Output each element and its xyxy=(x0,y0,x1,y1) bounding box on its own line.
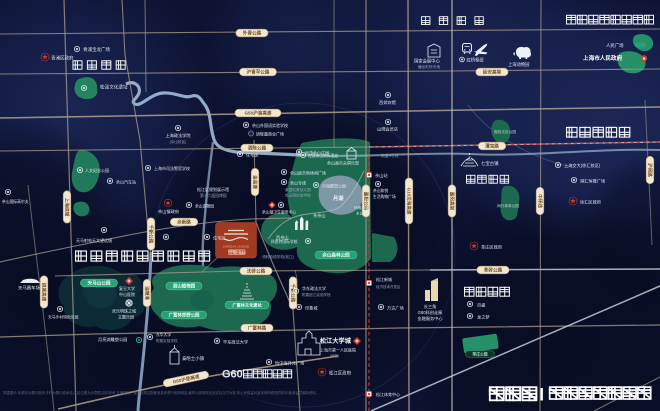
svg-text:上海市人民政府: 上海市人民政府 xyxy=(583,54,623,62)
svg-text:金昌塘: 金昌塘 xyxy=(251,174,258,189)
svg-text:经济技术开发区: 经济技术开发区 xyxy=(376,284,401,289)
svg-text:徐汇区政府: 徐汇区政府 xyxy=(580,199,601,206)
svg-text:CHATEAU LEGEND: CHATEAU LEGEND xyxy=(223,245,249,249)
svg-text:G50沪渝高速: G50沪渝高速 xyxy=(244,110,271,117)
svg-text:上海动物园: 上海动物园 xyxy=(508,61,529,68)
svg-text:虹桥枢纽: 虹桥枢纽 xyxy=(467,57,485,64)
svg-text:旭辉墨商业广场: 旭辉墨商业广场 xyxy=(256,131,284,137)
svg-text:松江体育中心: 松江体育中心 xyxy=(376,391,400,397)
svg-text:(佘山校区): (佘山校区) xyxy=(170,139,187,144)
svg-text:上海交大(徐汇校区): 上海交大(徐汇校区) xyxy=(564,162,601,169)
svg-text:上海政法学院: 上海政法学院 xyxy=(165,132,191,139)
svg-text:包玉刚实验学校: 包玉刚实验学校 xyxy=(285,193,311,198)
svg-text:领科双语学校(松江): 领科双语学校(松江) xyxy=(262,254,294,259)
svg-text:上海市第一人民医院: 上海市第一人民医院 xyxy=(320,347,356,353)
svg-text:千新公路: 千新公路 xyxy=(147,225,154,244)
svg-text:水公园: 水公园 xyxy=(356,211,367,216)
svg-text:科思特国际学校: 科思特国际学校 xyxy=(271,239,298,244)
svg-text:绕城高速: 绕城高速 xyxy=(40,283,47,302)
svg-text:生活购物广场: 生活购物广场 xyxy=(373,194,396,199)
svg-text:佘新路: 佘新路 xyxy=(176,219,191,226)
svg-text:佘山国际高尔夫: 佘山国际高尔夫 xyxy=(2,199,29,204)
svg-text:佘山专线: 佘山专线 xyxy=(290,180,306,186)
svg-text:蟠龙虹桥天地: 蟠龙虹桥天地 xyxy=(418,64,440,69)
svg-text:中环线: 中环线 xyxy=(536,194,543,208)
svg-text:万达广场: 万达广场 xyxy=(387,305,404,312)
svg-text:天马赛车场: 天马赛车场 xyxy=(18,285,41,292)
svg-text:长三角: 长三角 xyxy=(424,303,437,310)
svg-text:山姆会员店: 山姆会员店 xyxy=(377,126,398,133)
svg-text:天马射电天文望远镜: 天马射电天文望远镜 xyxy=(76,237,112,243)
svg-text:印象城: 印象城 xyxy=(305,305,318,312)
svg-text:人民广场: 人民广场 xyxy=(606,42,624,49)
svg-text:第十六届园博园: 第十六届园博园 xyxy=(200,193,227,198)
svg-text:佘山高尔夫俱乐部: 佘山高尔夫俱乐部 xyxy=(327,160,359,166)
svg-text:泗陈公路: 泗陈公路 xyxy=(248,145,267,152)
svg-text:住宅区: 住宅区 xyxy=(213,235,226,241)
svg-text:世茂佘山庄园: 世茂佘山庄园 xyxy=(305,150,329,156)
svg-text:月亮湖雕塑公园: 月亮湖雕塑公园 xyxy=(98,336,127,343)
svg-text:上海绕城: 上海绕城 xyxy=(63,198,70,217)
svg-text:松泽文化遗址: 松泽文化遗址 xyxy=(100,84,128,91)
svg-text:G60科创走廊: G60科创走廊 xyxy=(418,309,443,316)
svg-text:佘山外国语实验学校: 佘山外国语实验学校 xyxy=(252,122,288,128)
svg-text:莱茵虹景幼儿园: 莱茵虹景幼儿园 xyxy=(285,187,311,192)
svg-text:佘山游憩园: 佘山游憩园 xyxy=(195,204,214,209)
svg-text:松江大学城: 松江大学城 xyxy=(320,337,352,345)
svg-text:松江区规划展示馆: 松江区规划展示馆 xyxy=(197,186,229,192)
svg-text:泰晤士小镇: 泰晤士小镇 xyxy=(182,355,205,362)
svg-text:东佘山: 东佘山 xyxy=(313,212,326,219)
svg-text:G15沈海高速: G15沈海高速 xyxy=(405,187,412,214)
svg-text:华东政法大学: 华东政法大学 xyxy=(302,285,326,291)
svg-text:沪青平公路: 沪青平公路 xyxy=(247,69,270,76)
svg-text:怡中海开元广场: 怡中海开元广场 xyxy=(275,360,304,367)
svg-text:月湖: 月湖 xyxy=(332,194,343,202)
svg-text:闵行体育公园: 闵行体育公园 xyxy=(497,203,519,208)
svg-text:辰山植物园: 辰山植物园 xyxy=(173,283,196,290)
svg-text:嘉闵高架: 嘉闵高架 xyxy=(448,191,455,211)
svg-text:郑重提示:本资料为要约邀请,不作为要约或承诺,本区位图为示意: 郑重提示:本资料为要约邀请,不作为要约或承诺,本区位图为示意图,仅供参考,交通规… xyxy=(3,390,319,395)
svg-text:佘山和悦: 佘山和悦 xyxy=(373,188,388,193)
svg-text:广富林文化遗址: 广富林文化遗址 xyxy=(232,302,262,309)
svg-text:佘山汽车站: 佘山汽车站 xyxy=(116,179,136,185)
svg-text:复旦大学: 复旦大学 xyxy=(119,285,135,291)
svg-text:欢乐明珠之城: 欢乐明珠之城 xyxy=(112,308,136,314)
svg-text:沈砖公路: 沈砖公路 xyxy=(247,268,266,275)
svg-text:月湖雕塑公园: 月湖雕塑公园 xyxy=(322,183,346,189)
svg-text:上海市司法警官学校: 上海市司法警官学校 xyxy=(154,165,190,171)
svg-text:附属松江实验学校: 附属松江实验学校 xyxy=(302,292,331,297)
svg-text:金融服务中心: 金融服务中心 xyxy=(417,315,443,322)
svg-text:莘庄区政府: 莘庄区政府 xyxy=(481,244,502,251)
svg-text:佘山站: 佘山站 xyxy=(375,172,388,179)
svg-text:天马山公园: 天马山公园 xyxy=(88,280,111,287)
svg-text:广富林路: 广富林路 xyxy=(248,325,267,332)
svg-text:七宝古镇: 七宝古镇 xyxy=(481,160,499,167)
svg-text:港汇恒隆广场: 港汇恒隆广场 xyxy=(580,178,605,185)
svg-text:龙之梦: 龙之梦 xyxy=(477,314,490,321)
svg-text:(南部): (南部) xyxy=(330,353,339,358)
svg-text:油墩港: 油墩港 xyxy=(143,286,150,300)
svg-text:规划文化公园: 规划文化公园 xyxy=(494,129,516,134)
svg-text:外青公路: 外青公路 xyxy=(243,30,262,37)
svg-text:G60: G60 xyxy=(222,369,243,381)
svg-text:松江区政府: 松江区政府 xyxy=(329,370,352,377)
svg-text:百盛: 百盛 xyxy=(477,302,485,309)
svg-text:佘山镇卫生服务中心: 佘山镇卫生服务中心 xyxy=(262,210,296,215)
svg-text:玛雅海滩: 玛雅海滩 xyxy=(354,205,369,210)
svg-text:华东政法大学: 华东政法大学 xyxy=(223,339,248,346)
svg-text:中山医院: 中山医院 xyxy=(119,291,135,297)
svg-text:轨道9号线: 轨道9号线 xyxy=(381,153,399,158)
svg-text:主题乐园: 主题乐园 xyxy=(118,314,134,320)
svg-text:佘山辰天地休闲广场: 佘山辰天地休闲广场 xyxy=(290,170,326,176)
svg-text:莘砖公路: 莘砖公路 xyxy=(484,267,503,274)
svg-text:青浦宝龙广场: 青浦宝龙广场 xyxy=(83,46,110,53)
svg-text:人文纪念公园: 人文纪念公园 xyxy=(85,167,109,173)
svg-text:佘山镇政府: 佘山镇政府 xyxy=(158,208,179,215)
svg-text:漕宝路: 漕宝路 xyxy=(485,143,499,150)
svg-text:国家会展中心: 国家会展中心 xyxy=(414,58,440,65)
svg-text:西郊宾馆: 西郊宾馆 xyxy=(379,99,396,106)
svg-text:莘庄公园: 莘庄公园 xyxy=(472,351,487,356)
svg-text:延安高架: 延安高架 xyxy=(482,69,502,76)
svg-text:天马乡村特色乐园: 天马乡村特色乐园 xyxy=(48,315,79,320)
svg-text:住宅区: 住宅区 xyxy=(246,152,259,158)
svg-text:佘山森林公园: 佘山森林公园 xyxy=(321,252,350,259)
svg-text:松江新城: 松江新城 xyxy=(376,276,392,282)
svg-text:广富林郊野公园: 广富林郊野公园 xyxy=(169,312,200,319)
svg-text:附属实验学校: 附属实验学校 xyxy=(156,338,178,343)
svg-text:青浦区政府: 青浦区政府 xyxy=(51,55,74,62)
svg-text:东华大学: 东华大学 xyxy=(156,332,171,337)
svg-text:沪闵路: 沪闵路 xyxy=(646,163,653,177)
